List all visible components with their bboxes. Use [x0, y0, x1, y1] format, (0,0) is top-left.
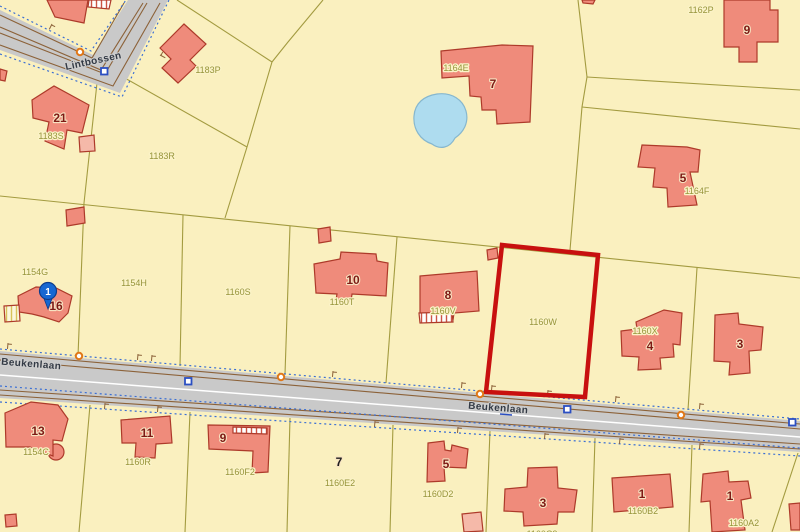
shed-bottomleft [5, 514, 17, 527]
orange-point-marker [678, 412, 684, 418]
cadastral-map: 1183P 1183S 1183R 1154G 1154H 1160S 1160… [0, 0, 800, 532]
house-number-21: 21 [53, 111, 67, 125]
building-hatched-top [88, 0, 111, 9]
parcel-label-1154g: 1154G [22, 267, 48, 277]
house-number-5-bottom: 5 [443, 457, 450, 471]
blue-square-marker [185, 378, 192, 385]
pin-label: 1 [45, 287, 51, 298]
parcel-label-1160b2: 1160B2 [628, 506, 658, 516]
house-number-8: 8 [445, 288, 452, 302]
parcel-label-1160w: 1160W [529, 317, 557, 327]
parcel-label-1160f2: 1160F2 [225, 467, 255, 477]
parcel-label-1183s: 1183S [38, 131, 63, 141]
building-left-sliver [0, 69, 7, 81]
parcel-label-1164e: 1164E [443, 63, 468, 73]
house-number-9-bottom: 9 [220, 431, 227, 445]
parcel-label-1164f: 1164F [685, 186, 710, 196]
building-16-annex [4, 305, 20, 322]
blue-square-marker [564, 406, 571, 413]
house-number-7-top: 7 [490, 77, 497, 91]
orange-point-marker [76, 353, 82, 359]
parcel-label-1183p: 1183P [195, 65, 220, 75]
building-21-annex [79, 135, 95, 152]
parcel-label-1162p: 1162P [688, 5, 713, 15]
parcel-label-1160r: 1160R [125, 457, 151, 467]
orange-point-marker [278, 374, 284, 380]
house-number-5-top: 5 [680, 171, 687, 185]
house-number-4: 4 [647, 339, 654, 353]
house-number-3-bottom: 3 [540, 496, 547, 510]
building-9-bottom-hatch [233, 427, 267, 434]
parcel-label-1160x: 1160X [632, 326, 657, 336]
parcel-label-1154h: 1154H [121, 278, 147, 288]
road-label-underline [500, 414, 512, 415]
house-number-1-west: 1 [639, 487, 646, 501]
house-number-11: 11 [141, 426, 154, 440]
parcel-label-1160d2: 1160D2 [423, 489, 454, 499]
parcel-label-1160v: 1160V [430, 306, 455, 316]
house-number-9-top: 9 [744, 23, 751, 37]
building-corner-partial [789, 503, 800, 530]
building-topedge-sliver [582, 0, 595, 4]
parcel-label-1154c: 1154C [23, 447, 49, 457]
parcel-label-1183r: 1183R [149, 151, 175, 161]
blue-square-marker [789, 419, 796, 426]
house-number-1-east: 1 [727, 489, 734, 503]
parcel-label-1160t: 1160T [330, 297, 355, 307]
cadastral-map-viewport: 1183P 1183S 1183R 1154G 1154H 1160S 1160… [0, 0, 800, 532]
house-number-10: 10 [346, 273, 360, 287]
parcel-label-1160e2: 1160E2 [325, 478, 355, 488]
shed-mid [318, 227, 331, 243]
blue-square-marker [101, 68, 108, 75]
shed-west [66, 207, 85, 226]
parcel-label-1160s: 1160S [225, 287, 250, 297]
shed-red-parcel [487, 248, 498, 260]
orange-point-marker [477, 391, 483, 397]
house-number-13: 13 [31, 424, 45, 438]
house-number-3-east: 3 [737, 337, 744, 351]
house-number-7-bottom: 7 [336, 455, 343, 469]
orange-point-marker [77, 49, 83, 55]
parcel-label-1160a2: 1160A2 [729, 518, 759, 528]
shed-light-bottom [462, 512, 483, 532]
